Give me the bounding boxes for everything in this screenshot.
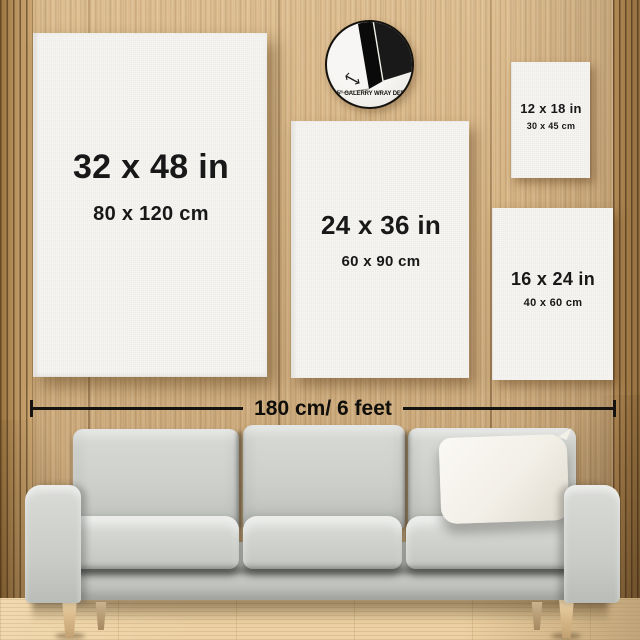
size-title: 16 x 24 in (511, 269, 595, 290)
ruler-label: 180 cm/ 6 feet (243, 397, 403, 421)
width-ruler: 180 cm/ 6 feet (30, 399, 616, 418)
size-title: 12 x 18 in (520, 101, 582, 116)
canvas-24x36: 24 x 36 in 60 x 90 cm (291, 121, 469, 378)
size-subtitle: 40 x 60 cm (524, 297, 583, 309)
sofa-leg-back (95, 602, 107, 630)
ruler-line-left (33, 407, 243, 410)
sofa (25, 422, 620, 640)
throw-pillow (439, 434, 570, 524)
canvas-12x18: 12 x 18 in 30 x 45 cm (511, 62, 590, 178)
seat-cushion (243, 516, 402, 569)
cushion-gap-shadow (404, 432, 409, 528)
canvas-16x24: 16 x 24 in 40 x 60 cm (492, 208, 613, 380)
size-title: 32 x 48 in (73, 148, 229, 187)
sofa-leg-front (558, 599, 575, 638)
depth-arrow-icon (346, 73, 359, 84)
armrest-right (564, 485, 620, 603)
size-subtitle: 30 x 45 cm (527, 121, 576, 131)
size-subtitle: 60 x 90 cm (342, 253, 421, 270)
size-label-stack: 12 x 18 in 30 x 45 cm (520, 101, 582, 131)
sofa-leg-back (531, 602, 543, 630)
armrest-left (25, 485, 81, 603)
sofa-leg-front (61, 599, 78, 638)
depth-badge: 1.5" GALERRY WRAY DEPT (325, 20, 414, 109)
under-seat-shadow (55, 567, 590, 574)
size-title: 24 x 36 in (321, 210, 441, 241)
product-mockup-scene: 32 x 48 in 80 x 120 cm 24 x 36 in 60 x 9… (0, 0, 640, 640)
ruler-tick-right (613, 400, 616, 417)
size-label-stack: 32 x 48 in 80 x 120 cm (73, 148, 229, 226)
seat-cushion (69, 516, 239, 569)
size-subtitle: 80 x 120 cm (93, 203, 209, 226)
back-cushion (243, 425, 405, 529)
canvas-32x48: 32 x 48 in 80 x 120 cm (33, 33, 267, 377)
cushion-gap-shadow (237, 432, 242, 528)
badge-label: 1.5" GALERRY WRAY DEPT (332, 90, 407, 97)
ruler-line-right (403, 407, 613, 410)
seat-cushion (406, 516, 573, 569)
size-label-stack: 16 x 24 in 40 x 60 cm (511, 269, 595, 309)
size-label-stack: 24 x 36 in 60 x 90 cm (321, 210, 441, 270)
